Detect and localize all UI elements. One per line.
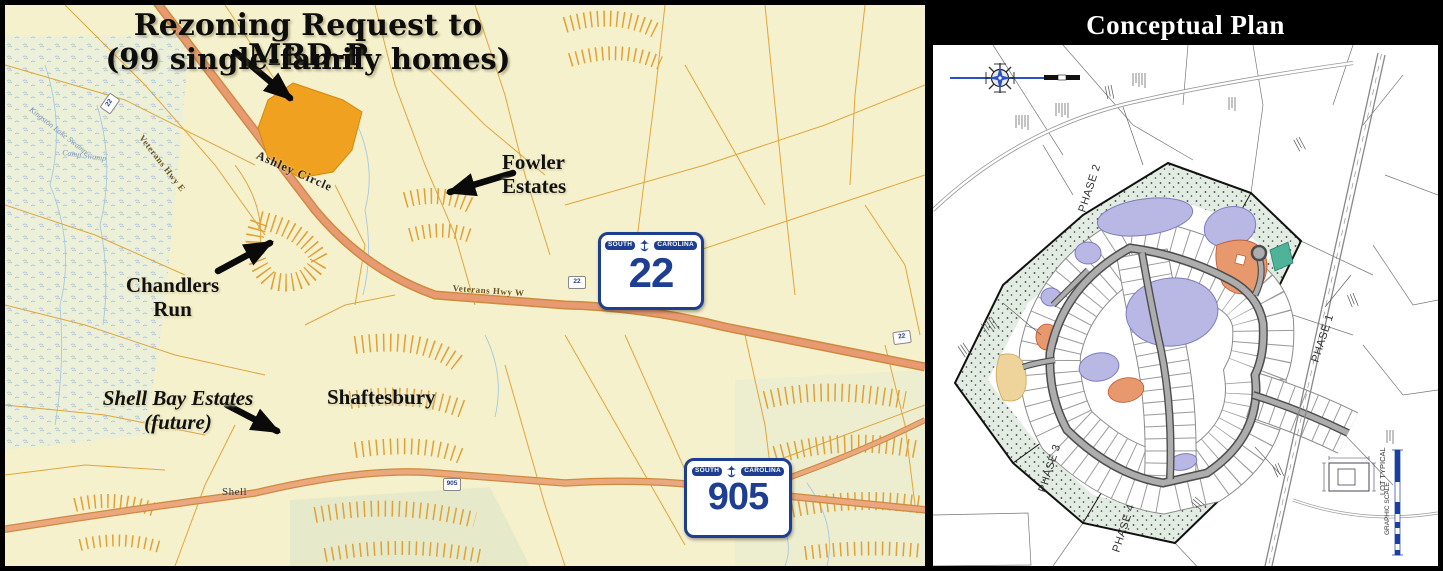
rezoning-title-line2: (99 single-family homes)	[93, 45, 523, 74]
conceptual-plan-panel: Conceptual Plan	[933, 5, 1438, 566]
shield22-route-number: 22	[629, 253, 674, 293]
location-map-panel: Rezoning Request to MRD-P (99 single-fam…	[5, 5, 925, 566]
plan-scale-bar	[1044, 75, 1080, 80]
fowler-line2: Estates	[502, 174, 566, 198]
shield905-route-number: 905	[708, 479, 768, 515]
mini-marker-22: 22	[568, 276, 586, 289]
shield905-south-label: SOUTH	[692, 467, 722, 476]
phase-1-label: PHASE 1	[1309, 313, 1336, 364]
lot-typical-diagram: LOT TYPICAL	[1322, 447, 1387, 495]
mini-marker-905: 905	[443, 478, 461, 491]
mini-marker-22: 22	[892, 330, 912, 345]
callout-shell-bay-estates: Shell Bay Estates (future)	[98, 386, 258, 434]
chandlers-line2: Run	[115, 297, 230, 321]
conceptual-plan-header: Conceptual Plan	[933, 5, 1438, 45]
road-label-shell: Shell	[222, 486, 247, 498]
chandlers-line1: Chandlers	[115, 273, 230, 297]
arrow-chandlers-run	[218, 243, 270, 271]
highway-shield-sc905: SOUTH CAROLINA 905	[684, 458, 792, 538]
compass-rose-icon	[950, 63, 1080, 93]
conceptual-plan-title: Conceptual Plan	[1086, 10, 1285, 41]
highway-shield-sc22: SOUTH CAROLINA 22	[598, 232, 704, 310]
conceptual-plan-drawing: PHASE 2 PHASE 1 PHASE 3 PHASE 4 LOT TYPI…	[933, 45, 1438, 566]
callout-fowler-estates: Fowler Estates	[502, 150, 566, 198]
shellbay-line1: Shell Bay Estates	[98, 386, 258, 410]
callout-chandlers-run: Chandlers Run	[115, 273, 230, 321]
slide-canvas: Rezoning Request to MRD-P (99 single-fam…	[0, 0, 1443, 571]
open-space-parcel	[996, 354, 1026, 401]
callout-shaftesbury: Shaftesbury	[327, 385, 436, 409]
graphic-scale-label: GRAPHIC SCALE	[1384, 482, 1391, 535]
shield905-carolina-label: CAROLINA	[741, 467, 784, 476]
cul-de-sac	[1252, 246, 1266, 260]
fowler-line1: Fowler	[502, 150, 566, 174]
shellbay-line2: (future)	[98, 410, 258, 434]
